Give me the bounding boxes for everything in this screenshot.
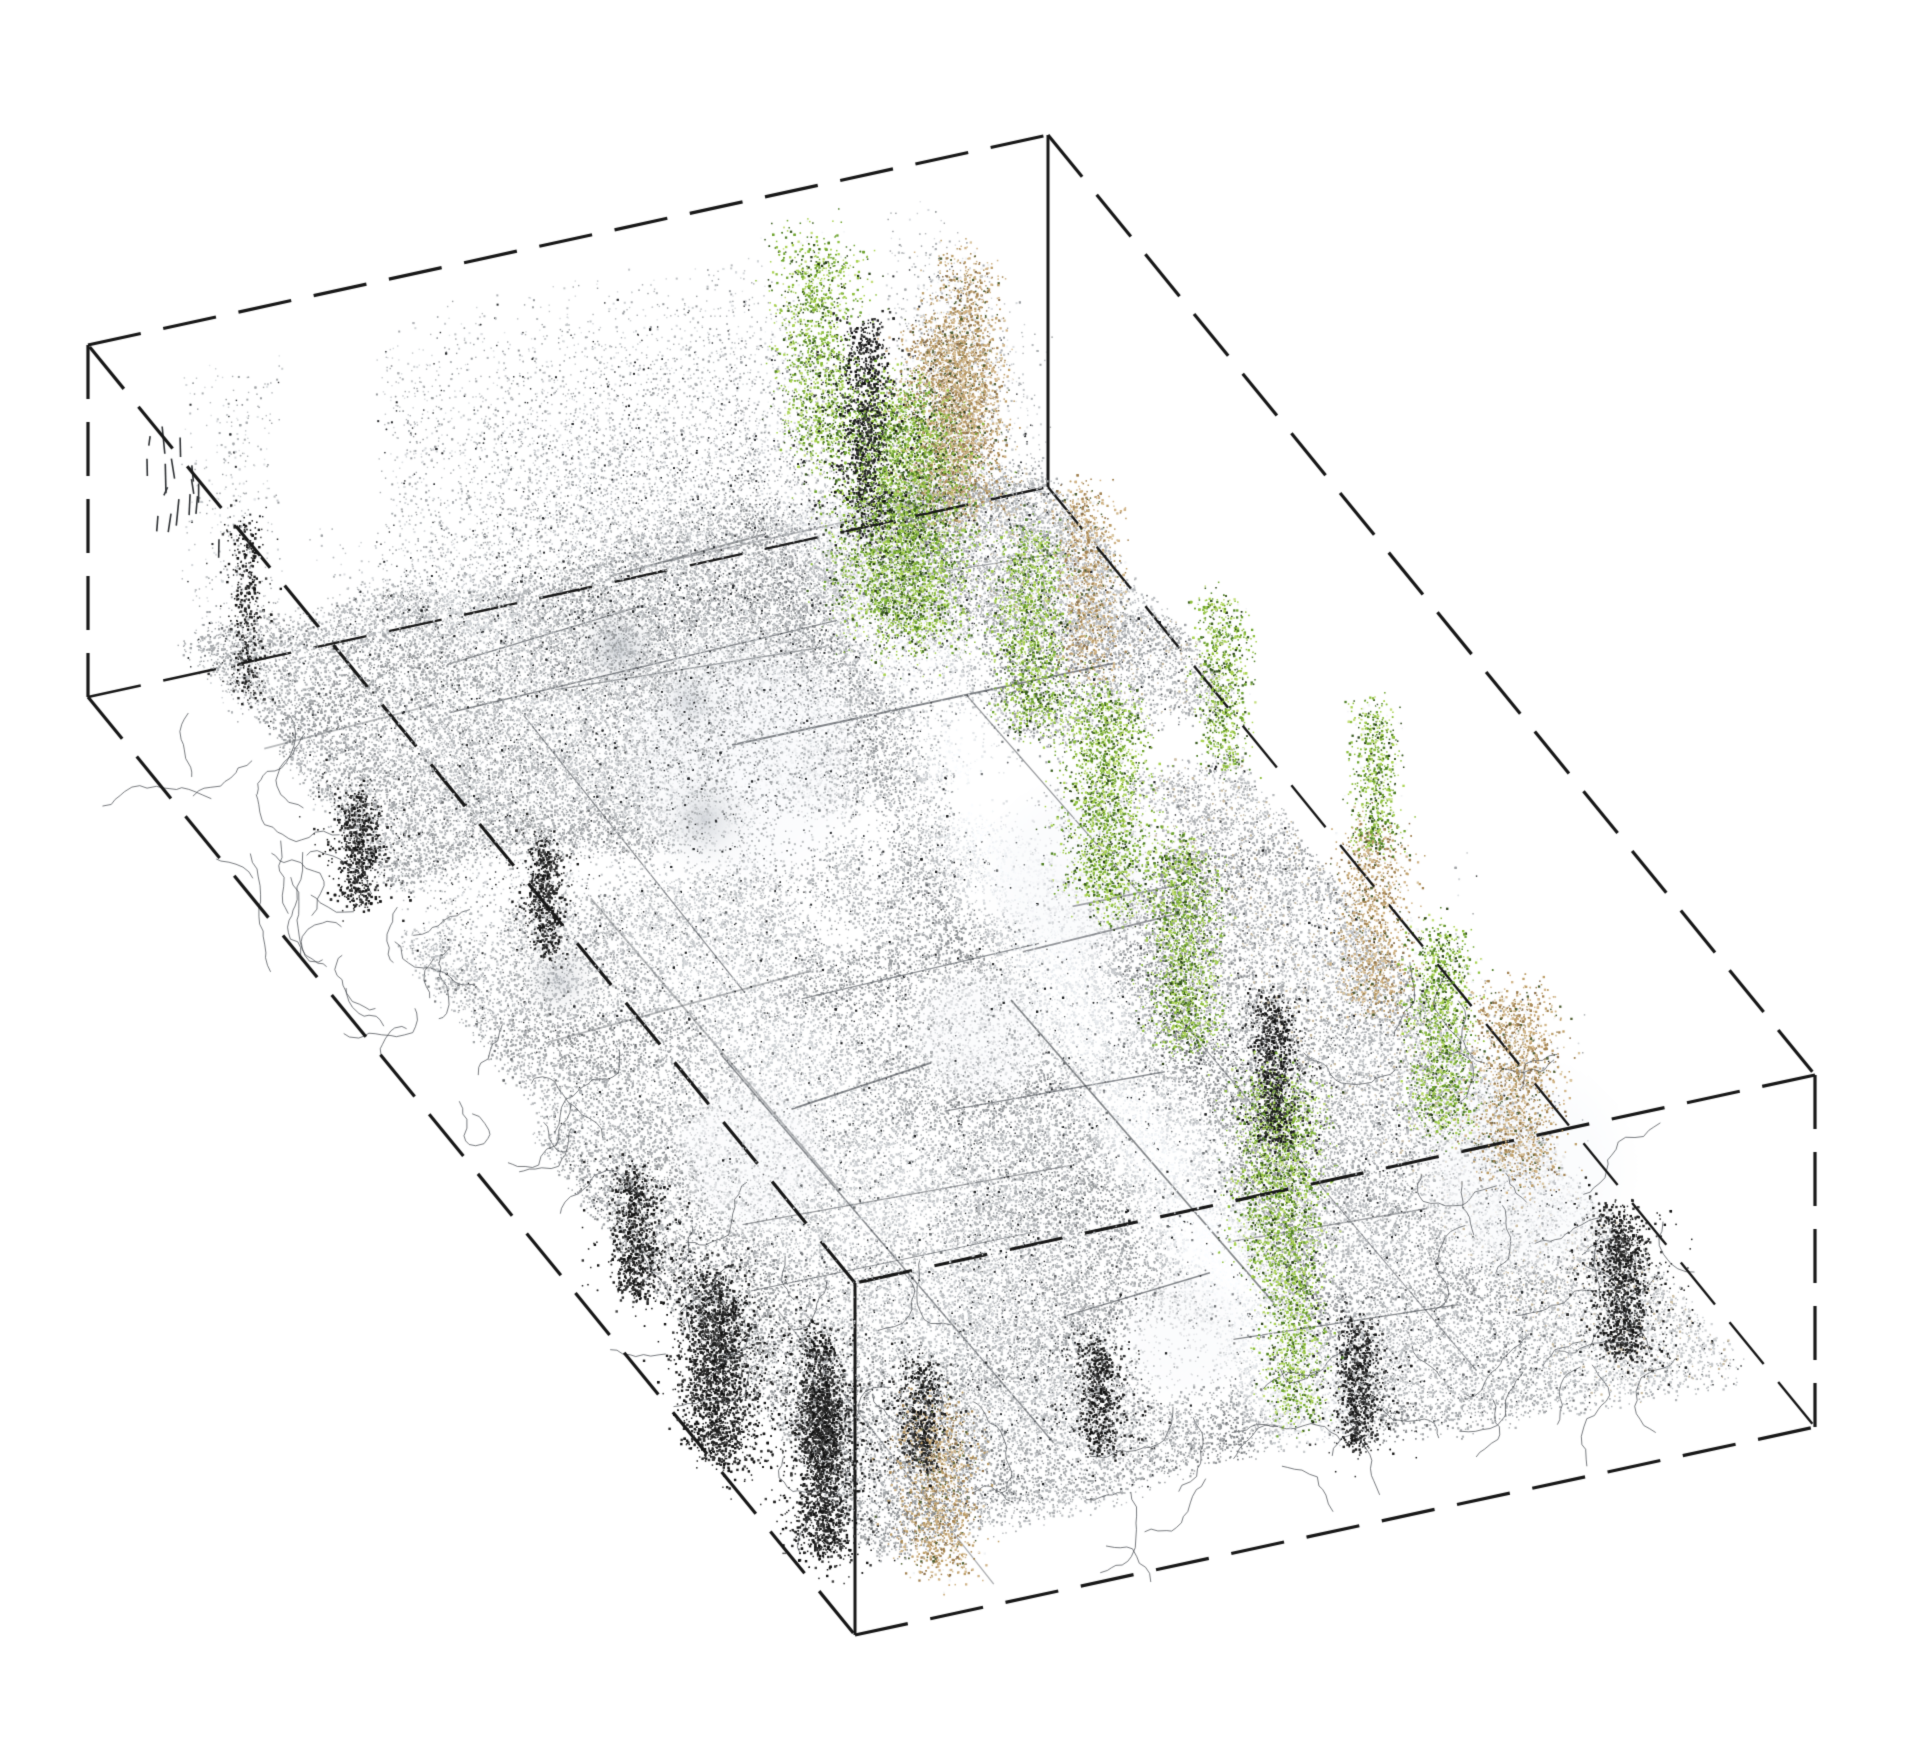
lidar-point-cloud-canvas [0,0,1920,1759]
point-cloud-figure [0,0,1920,1759]
